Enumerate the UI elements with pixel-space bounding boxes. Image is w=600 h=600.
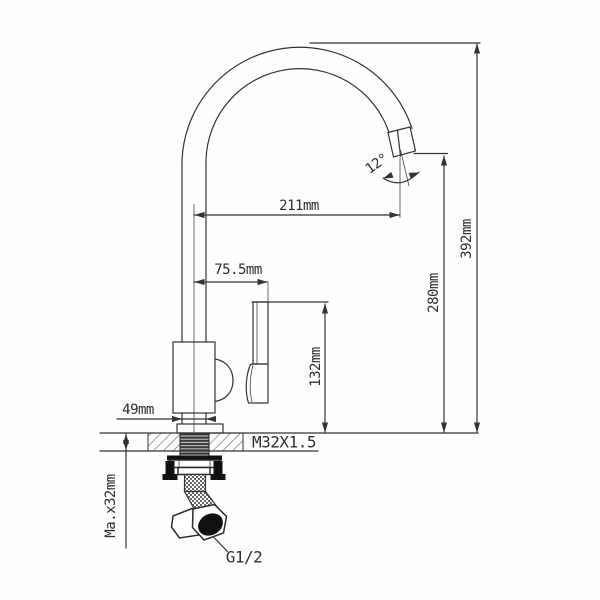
dim-label-handle-offset: 75.5mm: [214, 262, 262, 278]
dim-label-handle-height: 132mm: [308, 347, 324, 387]
spout-angle-arc: [383, 172, 419, 183]
dim-label-max-deck-thickness: Ma.x32mm: [103, 474, 119, 537]
dim-label-base-width: 49mm: [122, 402, 154, 418]
label-mounting-thread: M32X1.5: [252, 433, 316, 452]
gooseneck-spout-outline: [182, 47, 412, 432]
dim-label-spout-height: 280mm: [426, 273, 442, 313]
dimension-handle-offset-75: [194, 279, 268, 302]
label-hose-connection: G1/2: [226, 548, 263, 567]
dimension-overall-height-392: [310, 43, 480, 433]
dim-label-overall-height: 392mm: [459, 219, 475, 259]
drawing-canvas: 211mm 75.5mm 132mm 280mm 392mm 49mm 12° …: [0, 0, 600, 600]
spout-aerator: [388, 127, 416, 218]
supply-hose: [172, 475, 228, 552]
dim-label-spout-reach: 211mm: [279, 198, 319, 214]
faucet-technical-drawing: [0, 0, 600, 600]
dimension-deck-thickness: [123, 433, 129, 548]
